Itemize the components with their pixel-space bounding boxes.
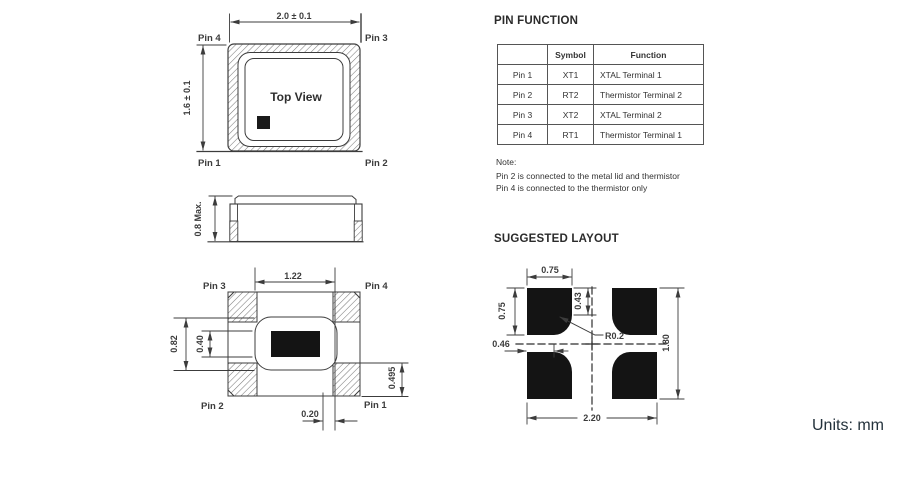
- cell-symbol: XT1: [548, 65, 594, 85]
- bottom-view-pin3-label: Pin 3: [203, 281, 226, 292]
- header-cell-blank: [498, 45, 548, 65]
- suggested-layout-title: SUGGESTED LAYOUT: [494, 233, 619, 245]
- layout-pad-height-dim-lines: [507, 288, 524, 335]
- cell-symbol: XT2: [548, 105, 594, 125]
- note-label: Note:: [496, 156, 680, 168]
- note-line: Pin 2 is connected to the metal lid and …: [496, 170, 680, 182]
- side-view-height-dim: 0.8 Max.: [193, 201, 203, 236]
- layout-pad-bottom-left: [527, 352, 572, 399]
- pin1-index-mark: [257, 116, 270, 129]
- bottom-view-pad-pin2: [228, 363, 257, 396]
- cell-function: Thermistor Terminal 2: [594, 85, 704, 105]
- side-view-terminal-left: [230, 221, 238, 242]
- units-label: Units: mm: [812, 417, 884, 435]
- layout-pad-height-dim: 0.75: [497, 302, 507, 320]
- side-view-drawing: 0.8 Max.: [193, 196, 363, 242]
- layout-notch-h-dim: 0.46: [492, 339, 510, 349]
- table-row: Pin 2 RT2 Thermistor Terminal 2: [498, 85, 704, 105]
- bottom-view-pad-span-dim: 1.22: [284, 271, 302, 281]
- bottom-view-pin2-label: Pin 2: [201, 401, 224, 412]
- cell-function: XTAL Terminal 1: [594, 65, 704, 85]
- top-view-pin3-label: Pin 3: [365, 33, 388, 44]
- top-view-width-dim: 2.0 ± 0.1: [277, 11, 312, 21]
- pin-function-table: Symbol Function Pin 1 XT1 XTAL Terminal …: [497, 44, 704, 145]
- header-cell-function: Function: [594, 45, 704, 65]
- top-view-pin2-label: Pin 2: [365, 158, 388, 169]
- bottom-view-pin1-label: Pin 1: [364, 400, 387, 411]
- layout-radius-dim: R0.2: [605, 331, 624, 341]
- top-view-drawing: Top View 2.0 ± 0.1 1.6 ± 0.1 Pin 4 Pin 3…: [182, 11, 388, 169]
- top-view-height-dim: 1.6 ± 0.1: [182, 81, 192, 116]
- cell-pin: Pin 4: [498, 125, 548, 145]
- table-row: Pin 1 XT1 XTAL Terminal 1: [498, 65, 704, 85]
- bottom-view-outer-height-dim: 0.82: [169, 335, 179, 353]
- note-block: Note: Pin 2 is connected to the metal li…: [496, 156, 680, 194]
- side-view-lid: [235, 196, 356, 204]
- bottom-view-crystal-blank: [271, 331, 320, 357]
- cell-symbol: RT1: [548, 125, 594, 145]
- drawing-canvas: Top View 2.0 ± 0.1 1.6 ± 0.1 Pin 4 Pin 3…: [0, 0, 899, 480]
- top-view-pin1-label: Pin 1: [198, 158, 221, 169]
- bottom-view-inner-height-dim: 0.40: [195, 335, 205, 353]
- bottom-view-pad-pin4: [333, 292, 360, 322]
- suggested-layout-drawing: 0.75 0.75 0.43 0.46 R0.2: [492, 265, 684, 424]
- note-line: Pin 4 is connected to the thermistor onl…: [496, 182, 680, 194]
- top-view-pin4-label: Pin 4: [198, 33, 221, 44]
- layout-pad-top-right: [612, 288, 657, 335]
- cell-function: XTAL Terminal 2: [594, 105, 704, 125]
- layout-pad-width-dim: 0.75: [541, 265, 559, 275]
- bottom-view-pin4-label: Pin 4: [365, 281, 388, 292]
- bottom-view-pad-pin3: [228, 292, 257, 322]
- cell-pin: Pin 3: [498, 105, 548, 125]
- bottom-view-drawing: 1.22 0.82 0.40 0.495 0.20: [169, 268, 408, 430]
- table-header-row: Symbol Function: [498, 45, 704, 65]
- bottom-view-offset-dim: 0.20: [301, 409, 319, 419]
- layout-notch-v-dim: 0.43: [573, 292, 583, 310]
- bottom-view-pad-height-dim: 0.495: [387, 367, 397, 390]
- layout-total-height-dim: 1.80: [661, 334, 671, 352]
- cell-pin: Pin 2: [498, 85, 548, 105]
- top-view-label: Top View: [270, 90, 322, 104]
- cell-symbol: RT2: [548, 85, 594, 105]
- layout-pad-top-left: [527, 288, 572, 335]
- pin-function-title: PIN FUNCTION: [494, 15, 578, 27]
- layout-pad-bottom-right: [612, 352, 657, 399]
- datasheet-page: Top View 2.0 ± 0.1 1.6 ± 0.1 Pin 4 Pin 3…: [0, 0, 899, 480]
- layout-total-width-dim: 2.20: [583, 413, 601, 423]
- table-row: Pin 3 XT2 XTAL Terminal 2: [498, 105, 704, 125]
- side-view-terminal-right: [354, 221, 362, 242]
- bottom-view-pad-pin1: [333, 363, 360, 396]
- cell-function: Thermistor Terminal 1: [594, 125, 704, 145]
- side-view-height-dim-lines: [209, 196, 232, 241]
- table-row: Pin 4 RT1 Thermistor Terminal 1: [498, 125, 704, 145]
- header-cell-symbol: Symbol: [548, 45, 594, 65]
- cell-pin: Pin 1: [498, 65, 548, 85]
- side-view-body: [230, 204, 362, 242]
